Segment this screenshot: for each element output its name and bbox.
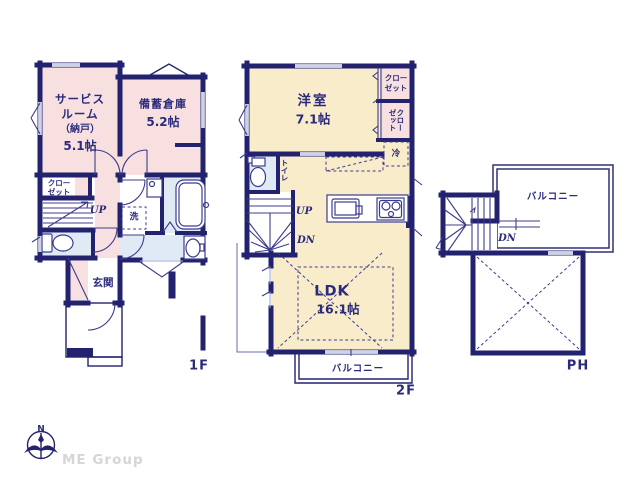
closet1-label-2: ゼット (385, 85, 408, 94)
floor-label-ph: PH (567, 358, 589, 373)
western-room-size: 7.1帖 (296, 113, 331, 128)
compass-needle (38, 434, 44, 443)
up-label-1f: UP (90, 205, 106, 217)
company-logo-text: ME Group (62, 452, 144, 468)
compass-north-label: N (37, 425, 45, 436)
toilet-tank-1f (42, 234, 52, 252)
ldk-label: LDK (314, 283, 350, 300)
floor-label-1f: 1F (189, 358, 209, 373)
service-room-label-1: サービス (55, 93, 105, 107)
toilet-tank-2f (252, 158, 265, 166)
fridge-label: 冷 (392, 149, 401, 159)
washer-pan (147, 179, 162, 197)
toilet-bowl-2f (251, 168, 266, 187)
dn-label-ph: DN (498, 233, 516, 245)
floor-ph (436, 165, 613, 353)
bay-window-top (150, 64, 188, 75)
balcony-label-ph: バルコニー (527, 191, 579, 202)
balcony-label-2f: バルコニー (332, 363, 384, 374)
western-room-label: 洋室 (298, 94, 329, 110)
floor-plan-drawing (0, 0, 640, 480)
floor-label-2f: 2F (396, 383, 416, 398)
storage-room-size: 5.2帖 (146, 115, 179, 129)
storage-room-label: 備蓄倉庫 (139, 99, 187, 112)
ph-room (473, 253, 583, 353)
entrance-label: 玄関 (93, 277, 114, 289)
toilet-label-2f: トイレ (280, 159, 288, 182)
service-room-size: 5.1帖 (63, 139, 96, 153)
closet-label-1f-2: ゼット (48, 189, 71, 198)
closet1-label-1: クロー (385, 75, 408, 84)
stairs-1f (43, 202, 93, 227)
toilet-bowl-1f (53, 235, 73, 251)
washer-label: 洗 (129, 213, 138, 224)
bathtub (176, 180, 205, 229)
floor-plan-page: サービス ルーム （納戸） 5.1帖 備蓄倉庫 5.2帖 クロー ゼット UP … (0, 0, 640, 480)
dn-label-2f: DN (297, 235, 315, 247)
compass (24, 432, 58, 460)
balcony-passage (499, 218, 540, 230)
ldk-size: 16.1帖 (316, 303, 359, 318)
up-label-2f: UP (296, 206, 312, 218)
service-room-label-2: ルーム (61, 108, 98, 122)
porch-step (67, 348, 93, 357)
service-room-label-3: （納戸） (60, 124, 100, 136)
closet2-label: クロー ゼット (388, 109, 404, 132)
bay-window-bottom (140, 262, 183, 277)
